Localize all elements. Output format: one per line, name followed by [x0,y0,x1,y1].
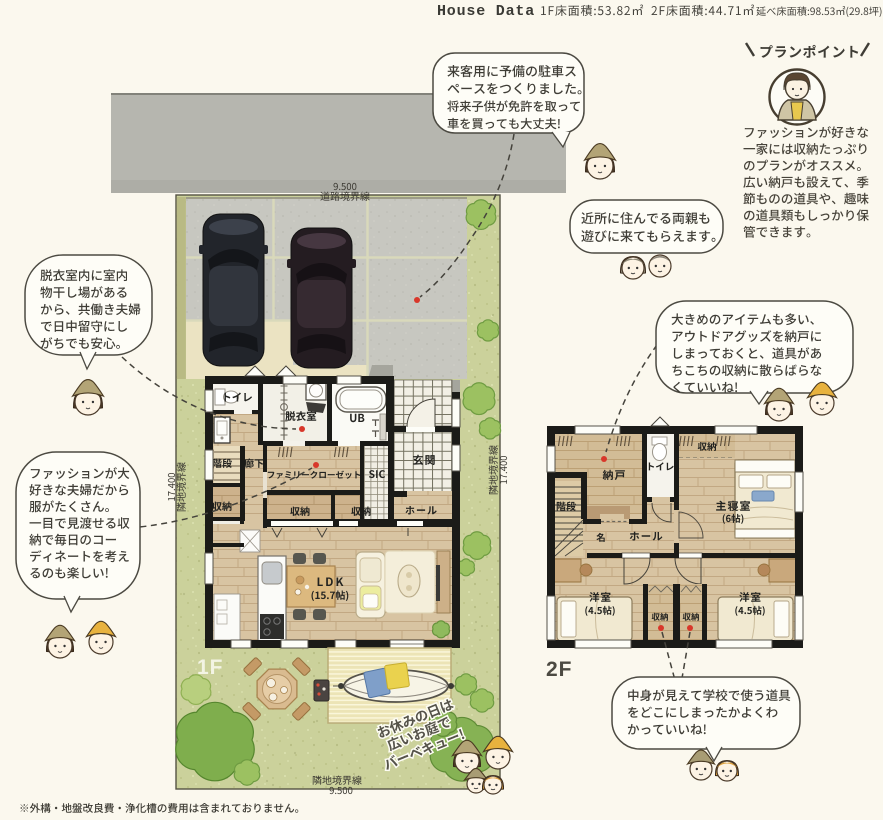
svg-text:2F: 2F [546,658,573,681]
svg-text:House Data: House Data [437,3,535,20]
svg-text:1F: 1F [197,656,224,679]
